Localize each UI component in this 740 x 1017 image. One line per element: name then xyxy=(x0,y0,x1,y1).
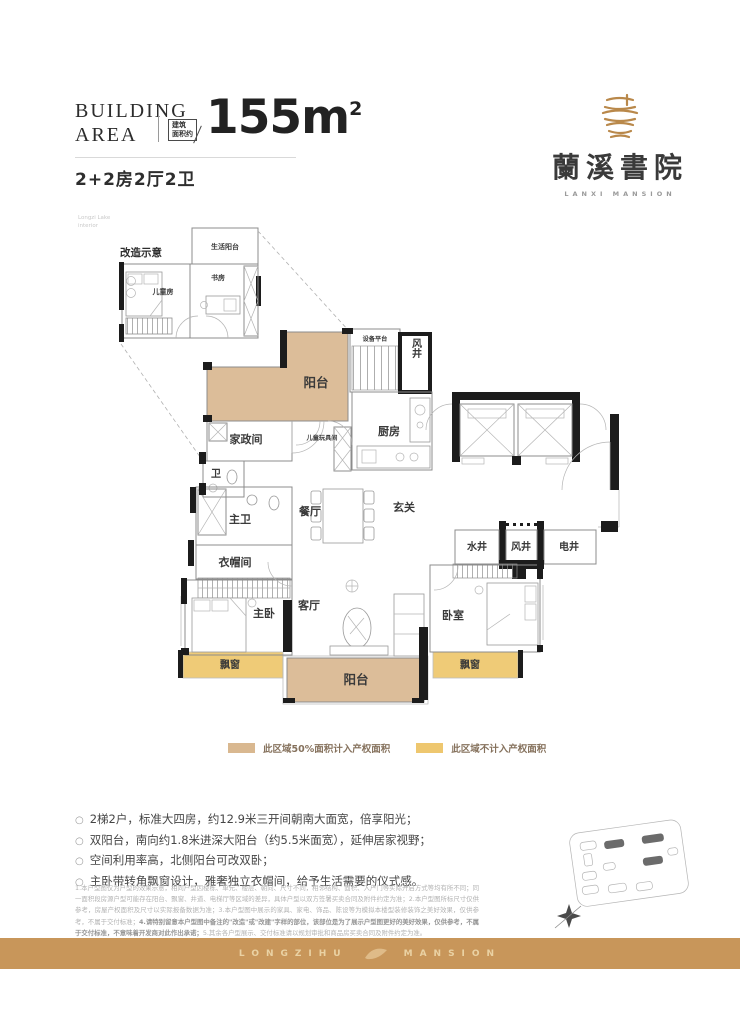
legend-label-excluded: 此区域不计入产权面积 xyxy=(451,741,546,755)
compass-icon xyxy=(555,904,581,928)
main-plan: 阳台 家政间 儿童玩具间 卫 厨房 设备平台 风井 餐厅 玄关 水井 风井 电井… xyxy=(178,328,619,704)
label-wind-shaft-top: 风井 xyxy=(410,338,422,359)
feature-text: 2梯2户，标准大四房，约12.9米三开间朝南大面宽，倍享阳光； xyxy=(90,812,418,826)
header-divider xyxy=(158,106,159,142)
brand-logo: 蘭溪書院 LANXI MANSION xyxy=(540,92,700,198)
label-master-bedroom: 主卧 xyxy=(253,606,275,620)
label-master-bath: 主卫 xyxy=(229,512,251,526)
room-living xyxy=(330,580,424,656)
inset-study-furniture xyxy=(201,266,259,336)
label-cloakroom: 衣帽间 xyxy=(219,555,252,569)
disclaimer-part3: 5.其余各户型展示、交付标准请以规划审批和商品房买卖合同及附件约定为准。 xyxy=(203,929,426,937)
label-housekeeping: 家政间 xyxy=(230,432,263,446)
label-wind-shaft: 风井 xyxy=(511,540,531,553)
footer-brand-right: MANSION xyxy=(404,949,501,959)
legend: 此区域50%面积计入产权面积 此区域不计入产权面积 xyxy=(228,741,546,755)
room-bath2 xyxy=(203,461,244,497)
label-bay-window-right: 飘窗 xyxy=(460,658,480,671)
label-bedroom2: 卧室 xyxy=(442,608,464,622)
floor-plan: Longzi Lake interior 改造示意 xyxy=(0,205,740,740)
bullet-circle-icon: ○ xyxy=(75,856,84,867)
label-dining: 餐厅 xyxy=(298,504,321,518)
elevator-block xyxy=(426,392,606,465)
disclaimer-text: 1.本户型图仅为户型的效果示意，相同户型因楼栋、单元、楼层、朝向、尺寸不同，相邻… xyxy=(75,883,479,939)
entry-door xyxy=(562,414,619,527)
unit-type-label: 2+2房2厅2卫 xyxy=(75,165,196,190)
label-kitchen: 厨房 xyxy=(378,424,400,438)
legend-swatch-excluded xyxy=(416,743,443,753)
label-foyer: 玄关 xyxy=(393,500,415,514)
area-number: 155m xyxy=(206,90,349,145)
area-approx-box: 建筑 面积约 xyxy=(168,119,197,141)
kids-play-area xyxy=(292,421,352,471)
header-rule xyxy=(75,157,296,158)
feature-item: ○2梯2户，标准大四房，约12.9米三开间朝南大面宽，倍享阳光； xyxy=(75,810,505,831)
inset-title: 改造示意 xyxy=(120,246,162,259)
logo-name-en: LANXI MANSION xyxy=(540,190,700,198)
leaf-icon xyxy=(364,947,388,961)
area-box-line2: 面积约 xyxy=(172,130,193,139)
feature-item: ○空间利用率高，北侧阳台可改双卧； xyxy=(75,851,505,872)
label-equipment-platform: 设备平台 xyxy=(363,335,388,343)
feature-text: 双阳台，南向约1.8米进深大阳台（约5.5米面宽），延伸居家视野； xyxy=(90,833,431,847)
label-balcony-north: 阳台 xyxy=(303,375,328,390)
label-balcony-south: 阳台 xyxy=(343,672,368,687)
area-superscript: 2 xyxy=(349,98,362,120)
label-life-balcony: 生活阳台 xyxy=(211,242,239,251)
room-cloakroom xyxy=(196,545,292,598)
feature-list: ○2梯2户，标准大四房，约12.9米三开间朝南大面宽，倍享阳光； ○双阳台，南向… xyxy=(75,810,505,892)
room-master-bedroom xyxy=(181,562,292,655)
label-bath2: 卫 xyxy=(211,468,221,480)
label-kids-play: 儿童玩具间 xyxy=(306,434,338,442)
floorplan-poster: BUILDING AREA 建筑 面积约 155m2 2+2房2厅2卫 蘭溪書院… xyxy=(0,0,740,1017)
label-electric-shaft: 电井 xyxy=(559,540,579,553)
bullet-circle-icon: ○ xyxy=(75,815,84,826)
label-study: 书房 xyxy=(211,273,225,282)
label-living: 客厅 xyxy=(297,598,320,612)
inset-note-line1: Longzi Lake xyxy=(78,215,111,221)
bullet-circle-icon: ○ xyxy=(75,836,84,847)
site-plan-sketch xyxy=(545,808,715,933)
legend-swatch-50pct xyxy=(228,743,255,753)
area-box-line1: 建筑 xyxy=(172,121,193,130)
legend-item-50pct: 此区域50%面积计入产权面积 xyxy=(228,741,390,755)
logo-name-cn: 蘭溪書院 xyxy=(540,146,700,186)
footer-band: LONGZIHU MANSION xyxy=(0,938,740,969)
inset-plan: Longzi Lake interior 改造示意 xyxy=(78,215,261,342)
legend-item-excluded: 此区域不计入产权面积 xyxy=(416,741,546,755)
area-value: 155m2 xyxy=(206,94,362,141)
feature-item: ○双阳台，南向约1.8米进深大阳台（约5.5米面宽），延伸居家视野； xyxy=(75,831,505,852)
label-kids-room: 儿童房 xyxy=(152,287,174,296)
feature-text: 空间利用率高，北侧阳台可改双卧； xyxy=(90,853,274,867)
label-water-shaft: 水井 xyxy=(466,540,487,553)
label-bay-window-left: 飘窗 xyxy=(220,658,240,671)
inset-note-line2: interior xyxy=(78,223,99,229)
legend-label-50pct: 此区域50%面积计入产权面积 xyxy=(263,741,390,755)
inset-kids-furniture xyxy=(126,272,172,334)
footer-brand-left: LONGZIHU xyxy=(239,949,348,959)
logo-emblem-icon xyxy=(597,92,643,142)
